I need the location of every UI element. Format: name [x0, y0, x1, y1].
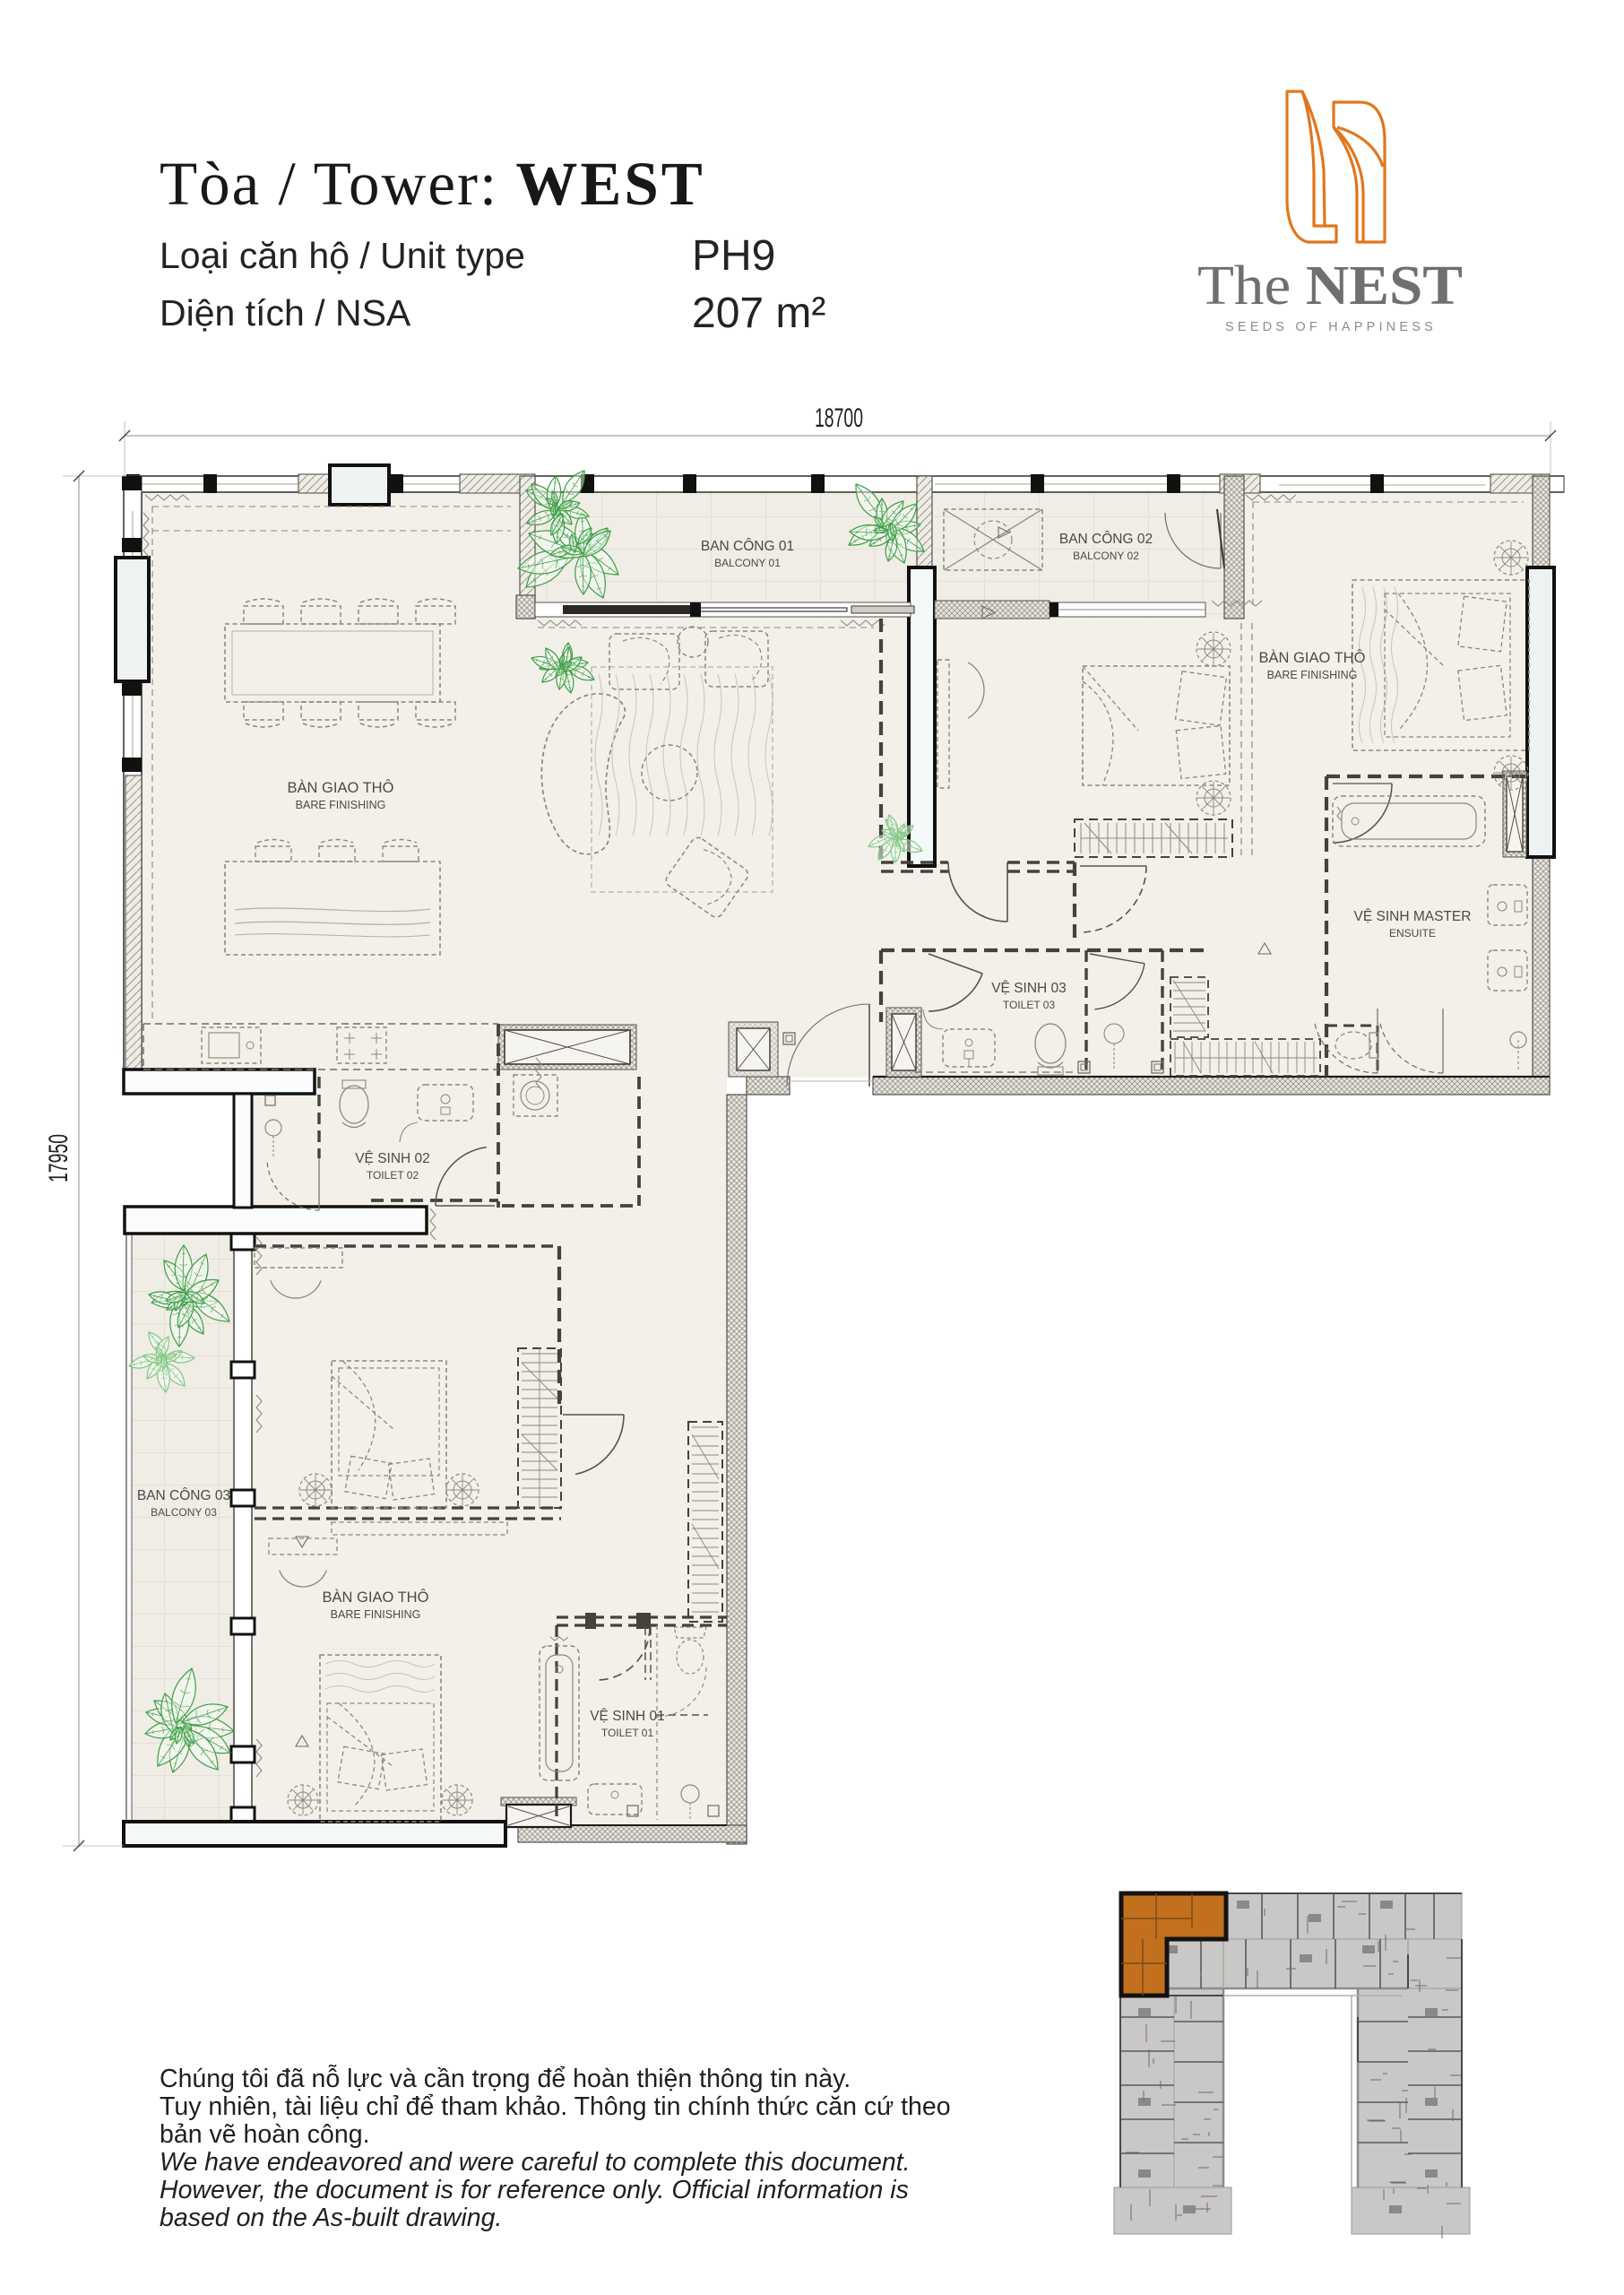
svg-text:BAN CÔNG 02: BAN CÔNG 02: [1059, 532, 1153, 547]
svg-text:TOILET 03: TOILET 03: [1003, 999, 1056, 1011]
svg-text:BARE FINISHING: BARE FINISHING: [1267, 669, 1358, 681]
svg-text:BÀN GIAO THÔ: BÀN GIAO THÔ: [1259, 649, 1366, 666]
svg-text:The NEST: The NEST: [1197, 255, 1463, 316]
svg-text:BARE FINISHING: BARE FINISHING: [331, 1608, 421, 1621]
svg-text:BÀN GIAO THÔ: BÀN GIAO THÔ: [288, 779, 394, 796]
svg-text:BALCONY 03: BALCONY 03: [151, 1506, 217, 1519]
svg-text:TOILET 02: TOILET 02: [367, 1169, 419, 1182]
svg-text:BARE FINISHING: BARE FINISHING: [296, 799, 386, 811]
svg-text:BAN CÔNG 01: BAN CÔNG 01: [701, 539, 794, 554]
svg-text:BALCONY 01: BALCONY 01: [714, 557, 781, 569]
svg-text:BAN CÔNG 03: BAN CÔNG 03: [137, 1488, 230, 1503]
svg-text:ENSUITE: ENSUITE: [1389, 927, 1436, 940]
svg-text:BALCONY 02: BALCONY 02: [1073, 550, 1139, 562]
svg-text:SEEDS OF HAPPINESS: SEEDS OF HAPPINESS: [1225, 320, 1437, 334]
svg-text:VỆ SINH 01: VỆ SINH 01: [590, 1709, 665, 1724]
svg-text:TOILET 01: TOILET 01: [601, 1727, 654, 1739]
svg-text:VỆ SINH 03: VỆ SINH 03: [991, 981, 1067, 996]
svg-text:17950: 17950: [44, 1134, 73, 1182]
svg-text:VỆ SINH 02: VỆ SINH 02: [355, 1151, 430, 1166]
svg-text:BÀN GIAO THÔ: BÀN GIAO THÔ: [323, 1589, 429, 1606]
svg-text:18700: 18700: [815, 403, 863, 433]
svg-text:VỆ SINH MASTER: VỆ SINH MASTER: [1354, 909, 1472, 924]
